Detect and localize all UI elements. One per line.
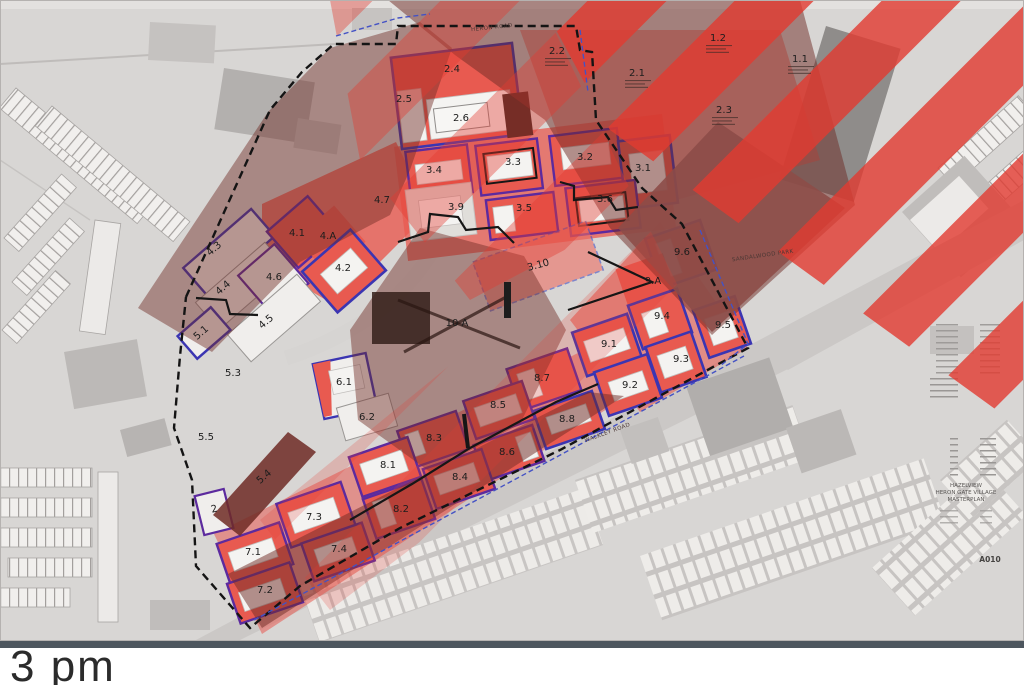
parcel-label: 8.5 — [490, 400, 506, 411]
shadow-study-page: 1.11.22.12.22.32.42.52.63.13.23.33.43.53… — [0, 0, 1024, 685]
parcel-label: 9.1 — [601, 339, 617, 350]
map-border-bar — [0, 641, 1024, 648]
parcel-label: 5.3 — [225, 368, 241, 379]
parcel-label: 3.1 — [635, 163, 651, 174]
parcel-label: 1.1 — [792, 54, 808, 65]
time-label: 3 pm — [0, 650, 116, 684]
parcel-label: 2.6 — [453, 113, 469, 124]
parcel-label: 6.1 — [336, 377, 352, 388]
parcel-label: 3.5 — [516, 203, 532, 214]
parcel-label: 5.5 — [198, 432, 214, 443]
parcel-label: 8.8 — [559, 414, 575, 425]
parcel-label: 2.2 — [549, 46, 565, 57]
titleblock-line: HAZELVIEW — [950, 483, 982, 489]
parcel-label: 9.5 — [715, 320, 731, 331]
parcel-label: 3.4 — [426, 165, 442, 176]
parcel-label: 8.2 — [393, 504, 409, 515]
caption-row: 3 pm — [0, 648, 1024, 685]
masterplan-map: 1.11.22.12.22.32.42.52.63.13.23.33.43.53… — [0, 0, 1024, 641]
parcel-label: 10 A — [446, 318, 469, 329]
parcel-label: 2.1 — [629, 68, 645, 79]
parcel-label: 4.A — [320, 231, 337, 242]
titleblock-line: MASTERPLAN — [947, 497, 984, 503]
parcel-label: 2.4 — [444, 64, 460, 75]
parcel-label: 7.4 — [331, 544, 347, 555]
parcel-label: 3.6 — [597, 194, 613, 205]
parcel-label: 8.7 — [534, 373, 550, 384]
parcel-label: 4.7 — [374, 195, 390, 206]
parcel-label: 7.1 — [245, 547, 261, 558]
parcel-label: 8.3 — [426, 433, 442, 444]
parcel-label: 8.4 — [452, 472, 468, 483]
parcel-label: 9.2 — [622, 380, 638, 391]
parcel-label: 9.A — [645, 276, 662, 287]
parcel-label: 6.2 — [359, 412, 375, 423]
parcel-label: 4.6 — [266, 272, 282, 283]
parcel-label: 9.3 — [673, 354, 689, 365]
sheet-number: A010 — [979, 555, 1000, 564]
parcel-label: 8.6 — [499, 447, 515, 458]
parcel-label: 1.2 — [710, 33, 726, 44]
parcel-label: 2.5 — [396, 94, 412, 105]
parcel-label: 2.3 — [716, 105, 732, 116]
parcel-label: 4.2 — [335, 263, 351, 274]
parcel-label: 3.2 — [577, 152, 593, 163]
parcel-label: 3.9 — [448, 202, 464, 213]
parcel-label: 4.1 — [289, 228, 305, 239]
parcel-label: 8.1 — [380, 460, 396, 471]
titleblock-line: HERON GATE VILLAGE — [936, 490, 997, 496]
parcel-label: 7.3 — [306, 512, 322, 523]
parcel-label: 3.3 — [505, 157, 521, 168]
parcel-label: 9.4 — [654, 311, 670, 322]
parcel-label: 9.6 — [674, 247, 690, 258]
parcel-label: 7.2 — [257, 585, 273, 596]
